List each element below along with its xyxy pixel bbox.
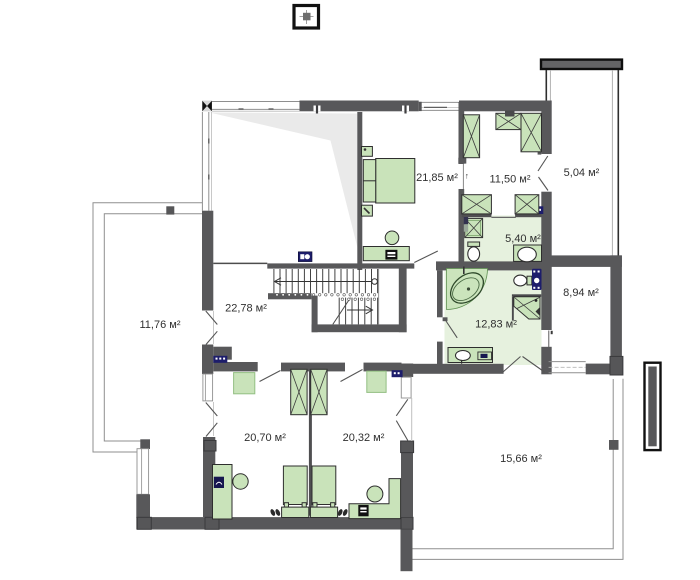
svg-text:15,66 м²: 15,66 м²	[500, 453, 542, 465]
svg-text:21,85 м²: 21,85 м²	[416, 172, 458, 184]
svg-text:11,50 м²: 11,50 м²	[490, 174, 531, 186]
svg-text:8,94 м²: 8,94 м²	[563, 287, 599, 299]
svg-text:12,83 м²: 12,83 м²	[475, 319, 517, 331]
svg-text:5,40 м²: 5,40 м²	[505, 233, 541, 245]
svg-text:20,32 м²: 20,32 м²	[343, 432, 385, 444]
svg-text:↑: ↑	[465, 172, 469, 181]
svg-text:5,04 м²: 5,04 м²	[564, 167, 600, 179]
svg-text:11,76 м²: 11,76 м²	[140, 319, 181, 331]
svg-text:20,70 м²: 20,70 м²	[244, 432, 286, 444]
svg-text:22,78 м²: 22,78 м²	[225, 303, 267, 315]
